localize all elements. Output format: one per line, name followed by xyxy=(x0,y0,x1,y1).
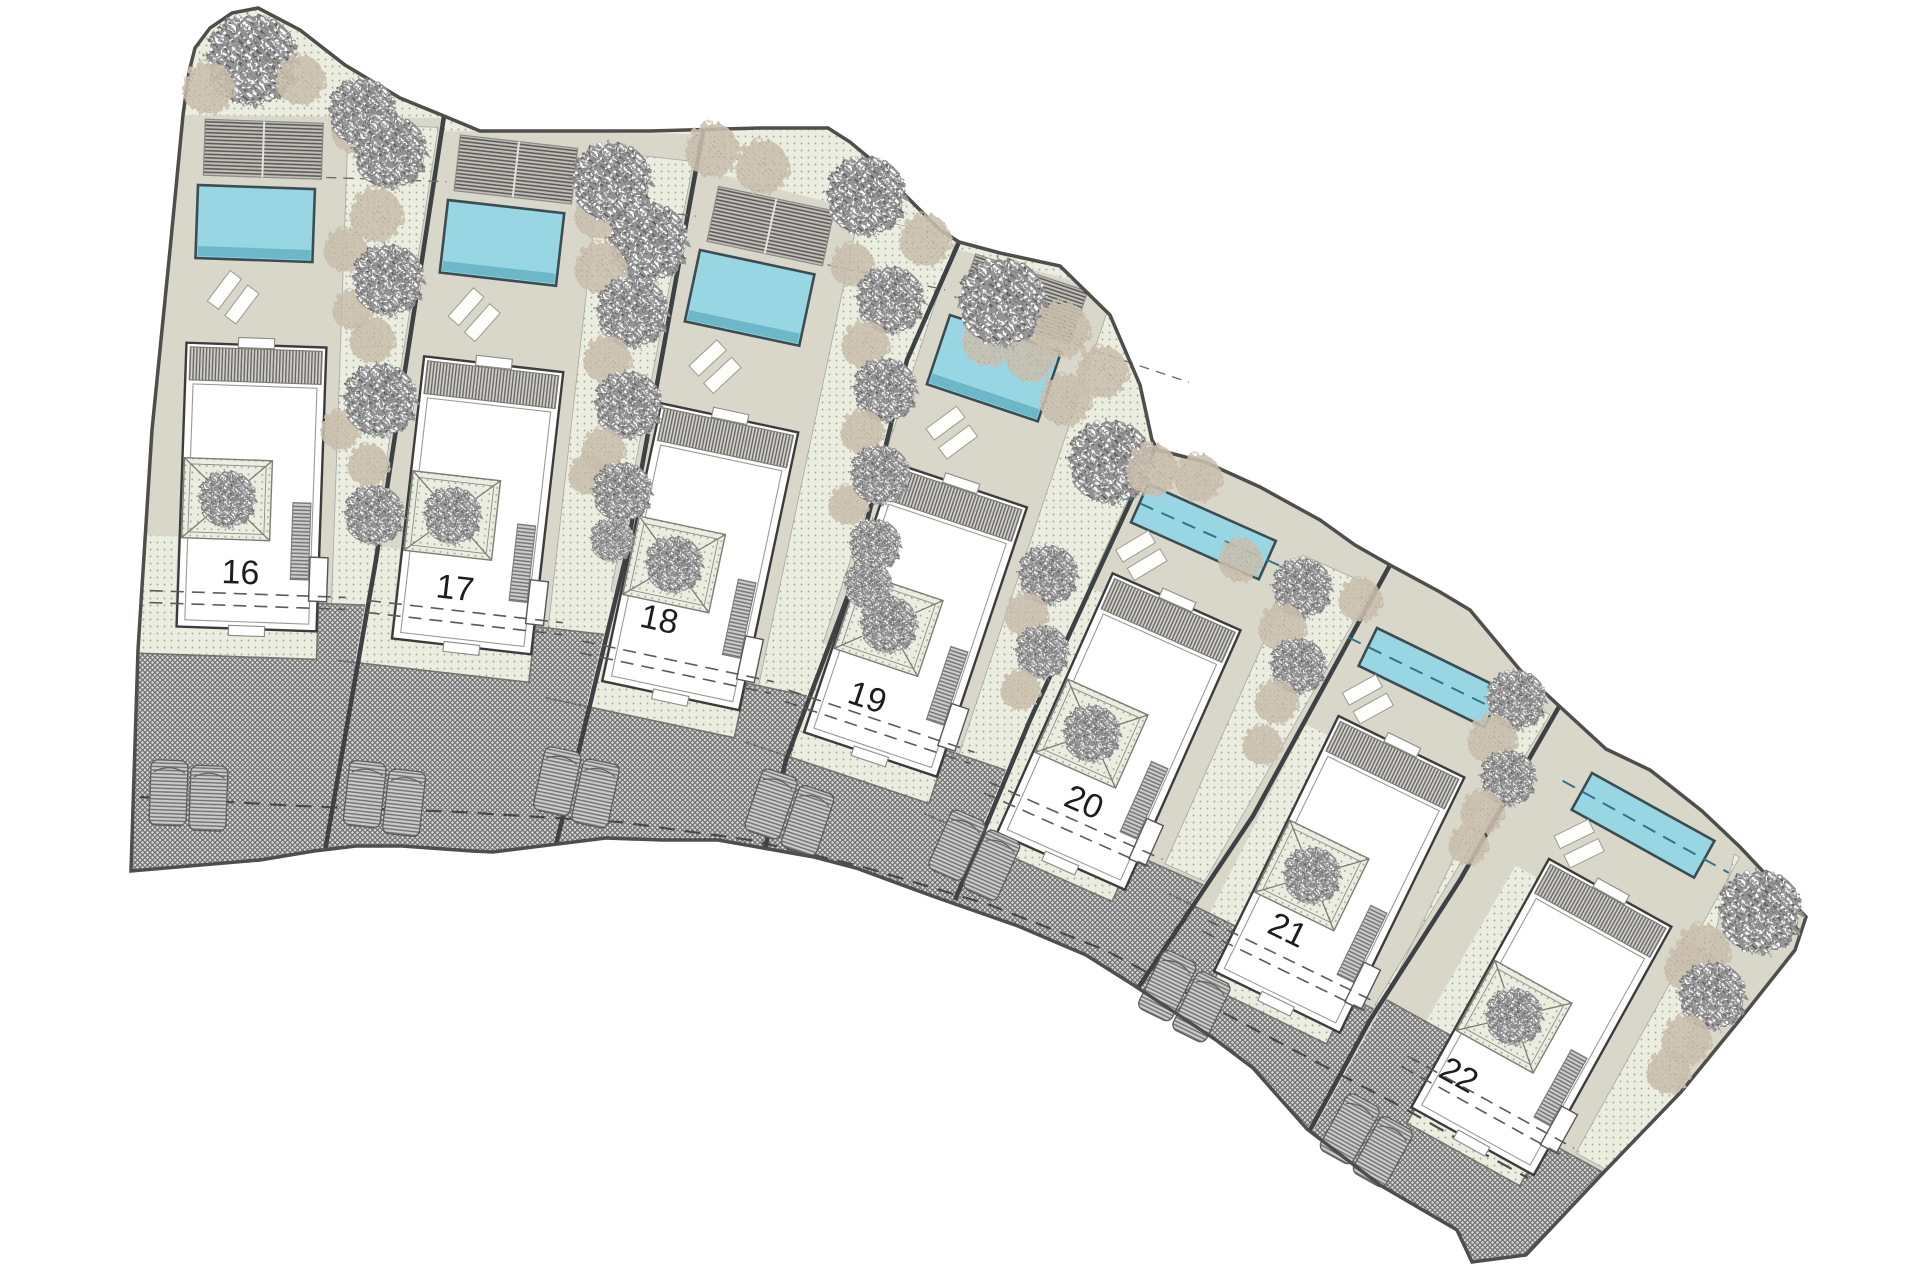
svg-text:18: 18 xyxy=(637,597,682,642)
svg-text:16: 16 xyxy=(221,553,260,592)
svg-text:17: 17 xyxy=(434,567,476,609)
